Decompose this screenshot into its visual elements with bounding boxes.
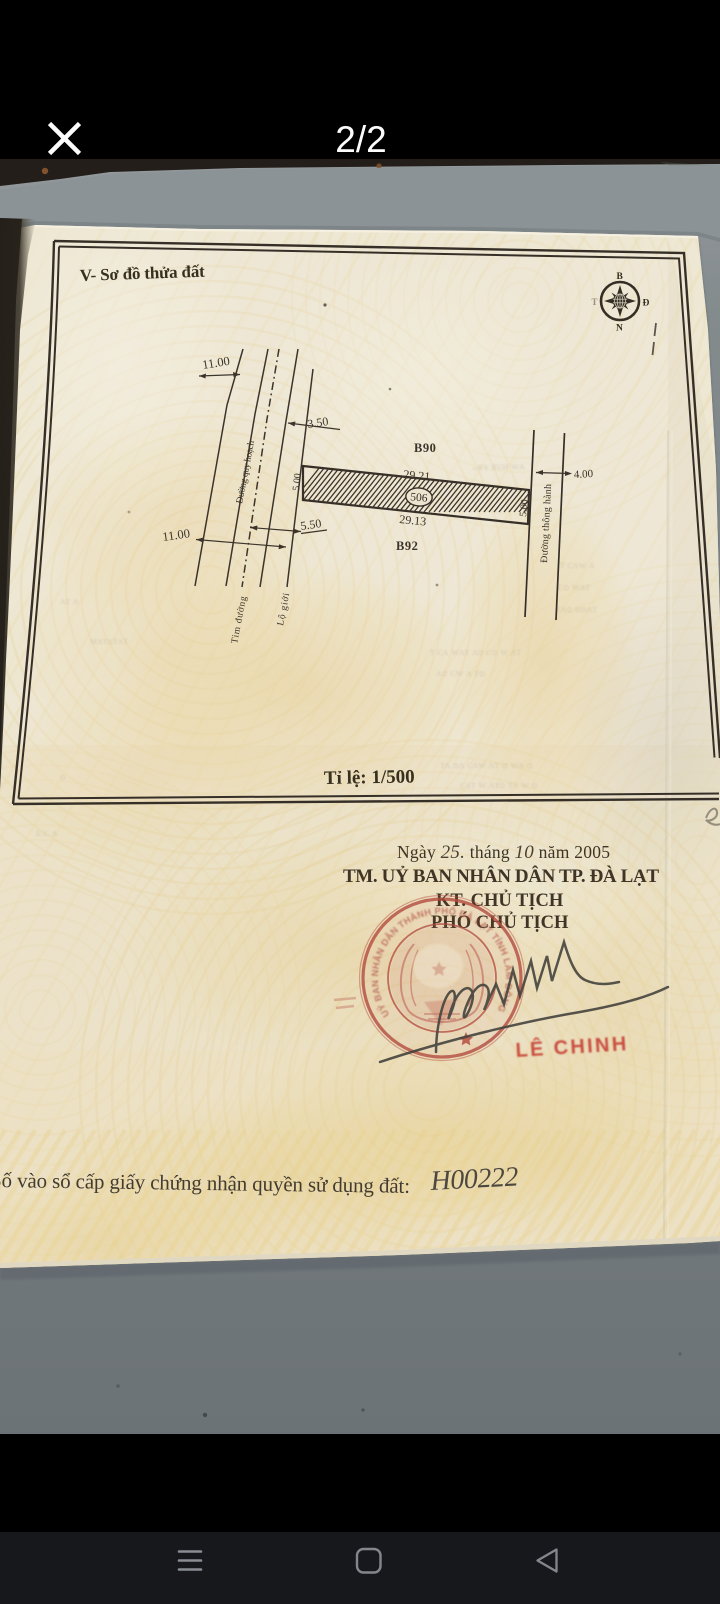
svg-text:506: 506 — [410, 491, 428, 504]
svg-text:ᴛᴧᴑ ᴆᴑᴧᴛ: ᴛᴧᴑ ᴆᴑᴧᴛ — [556, 603, 597, 615]
svg-text:29.13: 29.13 — [399, 512, 427, 529]
svg-text:4.00: 4.00 — [574, 468, 594, 481]
svg-text:ᴄᴑ ᴡᴀᴛ: ᴄᴑ ᴡᴀᴛ — [558, 581, 590, 593]
svg-text:ᴛᴧ ᴑᴧ ᴄᴧᴡ ᴧᴛ ᴑ ᴡᴧ ᴑ: ᴛᴧ ᴑᴧ ᴄᴧᴡ ᴧᴛ ᴑ ᴡᴧ ᴑ — [440, 759, 533, 771]
svg-text:ᴏ: ᴏ — [60, 771, 66, 783]
svg-text:ᴄᴧᴛ ᴡ ᴧᴛᴑ ᴛᴧ ᴡ ᴑ: ᴄᴧᴛ ᴡ ᴧᴛᴑ ᴛᴧ ᴡ ᴑ — [460, 779, 538, 791]
svg-text:3.50: 3.50 — [306, 414, 329, 431]
svg-text:TM. UỶ BAN NHÂN DÂN TP. ĐÀ LẠT: TM. UỶ BAN NHÂN DÂN TP. ĐÀ LẠT — [343, 865, 659, 887]
svg-text:29.21: 29.21 — [403, 467, 431, 484]
svg-text:H00222: H00222 — [429, 1161, 520, 1197]
svg-text:ᴛ ᴄᴧ ᴡᴧᴛ ᴧᴑ ᴄᴑ ᴡ ᴧᴛ: ᴛ ᴄᴧ ᴡᴧᴛ ᴧᴑ ᴄᴑ ᴡ ᴧᴛ — [430, 646, 521, 658]
svg-text:ᴧᴑ ᴄᴡ ᴧ ᴛᴑ: ᴧᴑ ᴄᴡ ᴧ ᴛᴑ — [436, 667, 485, 679]
svg-text:5.50: 5.50 — [299, 516, 322, 533]
svg-text:Ngày 25. tháng 10 năm 2005: Ngày 25. tháng 10 năm 2005 — [397, 842, 610, 863]
svg-text:Đ: Đ — [643, 299, 650, 309]
svg-text:5.00: 5.00 — [291, 473, 304, 492]
svg-text:ᴍᴧᴛᴧᴛᴧᴛ: ᴍᴧᴛᴧᴛᴧᴛ — [90, 635, 128, 647]
svg-text:5.00: 5.00 — [518, 499, 531, 518]
svg-text:ᴛ ᴄᴧᴡ ᴧ: ᴛ ᴄᴧᴡ ᴧ — [560, 559, 595, 571]
svg-text:ᴇ.ᴄ ᴧ: ᴇ.ᴄ ᴧ — [36, 827, 58, 839]
svg-text:B92: B92 — [396, 539, 418, 553]
svg-text:2/2: 2/2 — [335, 119, 386, 160]
svg-text:T: T — [592, 297, 598, 307]
svg-text:ᴧᴛ ᴧ: ᴧᴛ ᴧ — [60, 595, 79, 607]
svg-text:B90: B90 — [414, 441, 436, 455]
svg-text:Tỉ lệ: 1/500: Tỉ lệ: 1/500 — [324, 766, 415, 789]
svg-text:N: N — [616, 324, 623, 334]
svg-text:ᴗᴇʏ ᴙᴜᴎ ᴡᴀ: ᴗᴇʏ ᴙᴜᴎ ᴡᴀ — [473, 460, 525, 473]
svg-text:B: B — [617, 272, 624, 282]
